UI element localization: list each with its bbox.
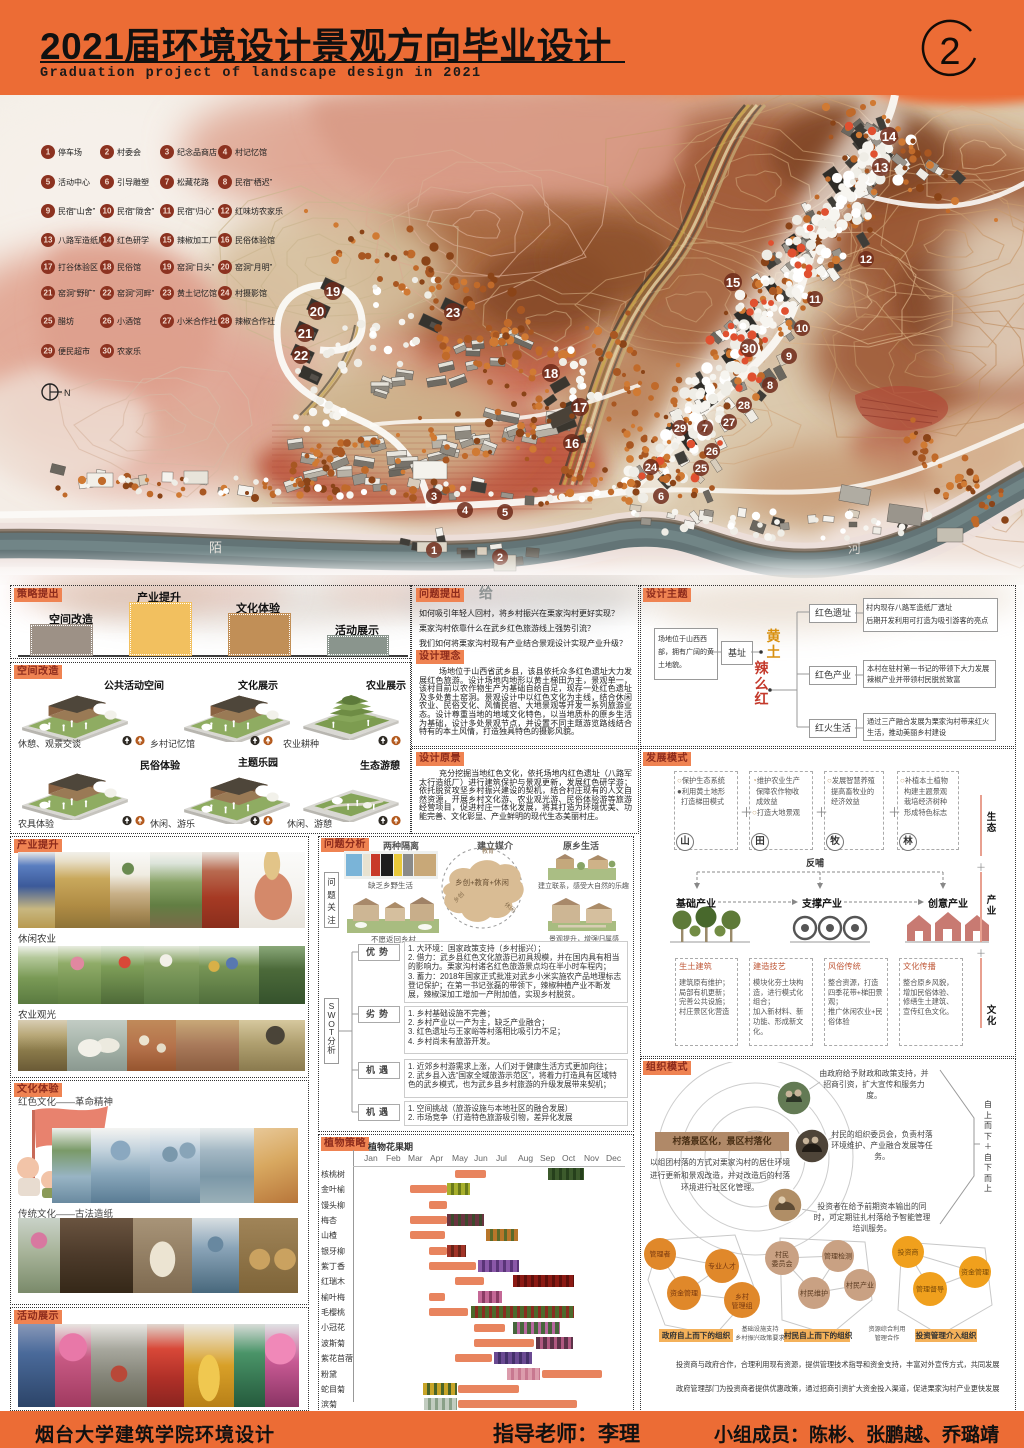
- svg-text:6: 6: [105, 178, 110, 187]
- svg-text:19: 19: [326, 284, 340, 299]
- svg-text:28: 28: [221, 317, 230, 326]
- svg-text:管理者: 管理者: [650, 1249, 671, 1258]
- svg-text:7: 7: [165, 178, 170, 187]
- svg-text:5: 5: [46, 178, 51, 187]
- svg-text:17: 17: [44, 263, 53, 272]
- svg-text:八路军造纸厂: 八路军造纸厂: [58, 235, 106, 245]
- svg-text:5: 5: [502, 507, 508, 519]
- svg-text:3: 3: [165, 148, 170, 157]
- svg-text:投资商: 投资商: [898, 1247, 919, 1256]
- svg-text:小酒馆: 小酒馆: [117, 316, 141, 326]
- svg-text:村民产业: 村民产业: [846, 1280, 874, 1289]
- svg-text:30: 30: [103, 347, 112, 356]
- svg-text:民俗馆: 民俗馆: [117, 262, 141, 272]
- svg-text:民宿“陇舍”: 民宿“陇舍”: [117, 206, 155, 216]
- svg-text:9: 9: [786, 351, 792, 363]
- svg-text:11: 11: [163, 207, 172, 216]
- svg-text:10: 10: [103, 207, 112, 216]
- svg-text:村摄影馆: 村摄影馆: [235, 288, 267, 298]
- svg-text:6: 6: [658, 491, 664, 503]
- svg-text:20: 20: [221, 263, 230, 272]
- svg-text:引导雕塑: 引导雕塑: [117, 177, 149, 187]
- svg-text:30: 30: [742, 341, 756, 356]
- svg-text:8: 8: [767, 380, 773, 392]
- svg-text:乡创+教育+休闲: 乡创+教育+休闲: [455, 877, 509, 887]
- svg-text:资金管理: 资金管理: [961, 1267, 989, 1276]
- svg-text:21: 21: [44, 289, 53, 298]
- svg-text:24: 24: [221, 289, 230, 298]
- svg-text:1: 1: [46, 148, 51, 157]
- svg-text:纪念品商店: 纪念品商店: [177, 147, 217, 157]
- svg-text:窑洞“日头”: 窑洞“日头”: [177, 262, 215, 272]
- svg-text:民宿“栖迟”: 民宿“栖迟”: [235, 177, 273, 187]
- svg-text:18: 18: [544, 366, 558, 381]
- svg-text:红色研学: 红色研学: [117, 235, 149, 245]
- svg-text:24: 24: [645, 462, 658, 474]
- svg-text:18: 18: [103, 263, 112, 272]
- svg-text:15: 15: [726, 275, 740, 290]
- svg-text:红味坊农家乐: 红味坊农家乐: [235, 206, 283, 216]
- svg-text:19: 19: [163, 263, 172, 272]
- svg-text:27: 27: [723, 417, 735, 429]
- svg-text:29: 29: [674, 423, 686, 435]
- svg-text:26: 26: [706, 446, 718, 458]
- svg-text:委员会: 委员会: [772, 1259, 793, 1268]
- svg-text:25: 25: [695, 463, 707, 475]
- svg-text:4: 4: [223, 148, 228, 157]
- svg-text:小米合作社: 小米合作社: [177, 316, 217, 326]
- svg-text:4: 4: [462, 505, 469, 517]
- svg-text:管理检测: 管理检测: [824, 1251, 852, 1260]
- svg-text:2: 2: [939, 31, 960, 73]
- svg-text:12: 12: [860, 254, 872, 266]
- svg-text:松藏花路: 松藏花路: [177, 177, 209, 187]
- svg-text:辣椒加工厂: 辣椒加工厂: [177, 235, 217, 245]
- svg-text:25: 25: [44, 317, 53, 326]
- svg-text:7: 7: [702, 423, 708, 435]
- svg-text:便民超市: 便民超市: [58, 346, 90, 356]
- svg-text:16: 16: [221, 236, 230, 245]
- svg-text:26: 26: [103, 317, 112, 326]
- svg-text:13: 13: [874, 160, 888, 175]
- svg-text:村民维护: 村民维护: [800, 1288, 828, 1297]
- svg-text:辣椒合作社: 辣椒合作社: [235, 316, 275, 326]
- svg-text:14: 14: [882, 129, 897, 144]
- svg-text:23: 23: [446, 305, 460, 320]
- svg-text:农家乐: 农家乐: [117, 346, 141, 356]
- svg-text:16: 16: [565, 436, 579, 451]
- svg-text:3: 3: [431, 491, 437, 503]
- svg-text:窑洞“河畔”: 窑洞“河畔”: [117, 288, 155, 298]
- svg-text:13: 13: [44, 236, 53, 245]
- svg-text:29: 29: [44, 347, 53, 356]
- svg-text:管理督导: 管理督导: [916, 1284, 944, 1293]
- svg-text:2: 2: [105, 148, 110, 157]
- svg-text:23: 23: [163, 289, 172, 298]
- svg-text:资金管理: 资金管理: [670, 1288, 698, 1297]
- svg-text:20: 20: [310, 304, 324, 319]
- svg-text:11: 11: [809, 294, 821, 306]
- svg-text:9: 9: [46, 207, 51, 216]
- svg-text:专业人才: 专业人才: [708, 1261, 736, 1270]
- svg-text:活动中心: 活动中心: [58, 177, 90, 187]
- svg-text:17: 17: [573, 400, 587, 415]
- svg-text:民俗体验馆: 民俗体验馆: [235, 235, 275, 245]
- svg-text:22: 22: [103, 289, 112, 298]
- svg-text:村记忆馆: 村记忆馆: [235, 147, 267, 157]
- svg-text:民宿“归心”: 民宿“归心”: [177, 206, 215, 216]
- svg-text:15: 15: [163, 236, 172, 245]
- svg-text:村委会: 村委会: [117, 147, 141, 157]
- svg-text:黄土记忆馆: 黄土记忆馆: [177, 288, 217, 298]
- svg-text:27: 27: [163, 317, 172, 326]
- svg-text:8: 8: [223, 178, 228, 187]
- svg-text:12: 12: [221, 207, 230, 216]
- svg-text:教育: 教育: [482, 847, 494, 855]
- svg-text:民宿“山舍”: 民宿“山舍”: [58, 206, 96, 216]
- svg-text:停车场: 停车场: [58, 147, 82, 157]
- svg-text:窑洞“月明”: 窑洞“月明”: [235, 262, 273, 272]
- svg-text:醋坊: 醋坊: [58, 316, 74, 326]
- svg-text:10: 10: [796, 323, 808, 335]
- svg-text:14: 14: [103, 236, 112, 245]
- svg-text:窑洞“野旷”: 窑洞“野旷”: [58, 288, 96, 298]
- svg-text:28: 28: [738, 400, 750, 412]
- svg-text:21: 21: [298, 326, 312, 341]
- svg-text:村民: 村民: [775, 1250, 789, 1259]
- svg-text:乡村: 乡村: [735, 1292, 749, 1301]
- svg-text:22: 22: [294, 348, 308, 363]
- svg-text:管理组: 管理组: [732, 1301, 753, 1310]
- svg-text:打谷体验区: 打谷体验区: [58, 262, 98, 272]
- svg-text:N: N: [64, 388, 71, 398]
